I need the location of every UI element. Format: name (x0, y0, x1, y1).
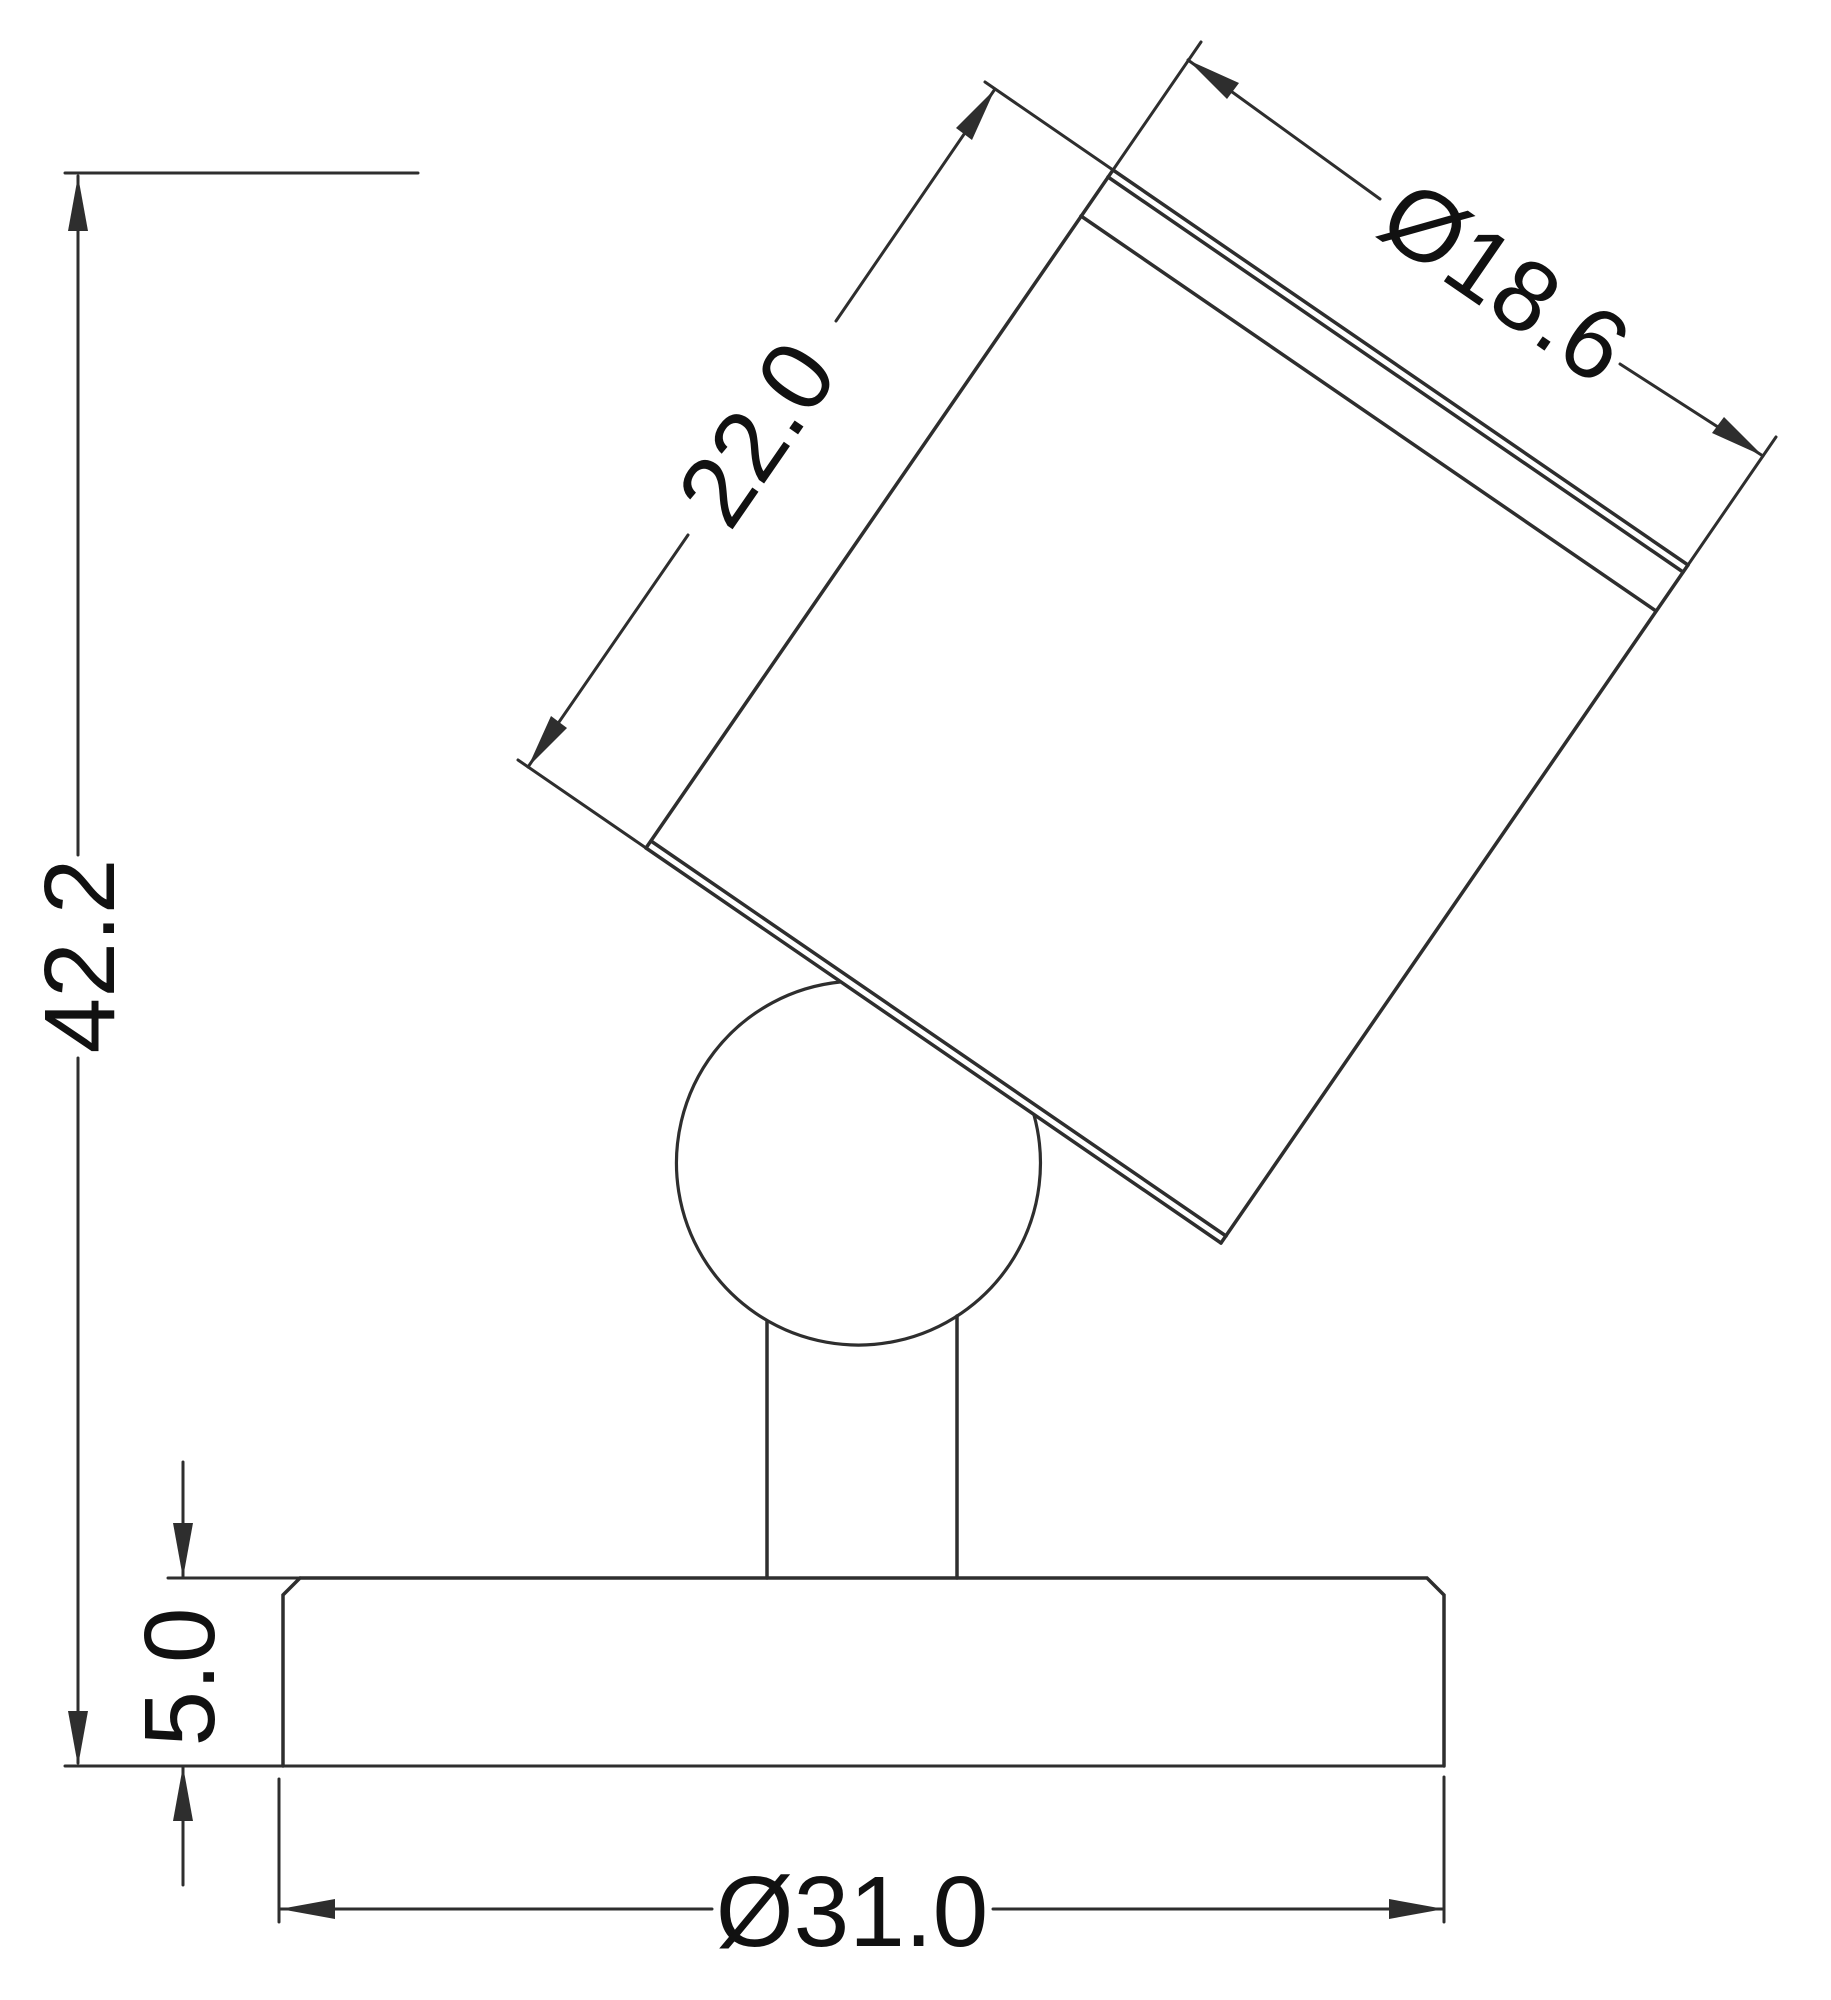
spotlight-dimension-drawing: 42.2 5.0 Ø31.0 22.0 Ø18.6 (0, 0, 1831, 2000)
base (283, 1578, 1444, 1766)
arrow-head-length-upper (956, 89, 995, 140)
arrow-head-diameter-right (1712, 417, 1763, 456)
base-outline (283, 1578, 1444, 1766)
dim-head-length (518, 82, 1113, 848)
arrow-overall-height-up (68, 176, 88, 231)
arrow-base-thickness-down (173, 1523, 193, 1578)
arrow-base-thickness-up (173, 1766, 193, 1821)
head-back-face-edge (646, 848, 1221, 1243)
dim-base-thickness-label: 5.0 (124, 1607, 236, 1746)
arrow-base-diameter-left (280, 1899, 335, 1919)
dim-base-diameter-label: Ø31.0 (716, 1856, 988, 1968)
arrow-base-diameter-right (1389, 1899, 1444, 1919)
arrow-overall-height-down (68, 1711, 88, 1766)
head-right-edge (1221, 565, 1688, 1243)
ball-joint-outline (676, 982, 1040, 1345)
head-back-rim-line (651, 841, 1226, 1236)
dim-head-length-extension-upper (985, 82, 1113, 170)
stem (767, 1316, 957, 1578)
technical-drawing-page: 42.2 5.0 Ø31.0 22.0 Ø18.6 (0, 0, 1831, 2000)
dim-head-length-label: 22.0 (656, 322, 859, 546)
dim-head-length-extension-lower (518, 760, 646, 848)
arrow-head-diameter-left (1188, 60, 1239, 99)
dim-overall-height-label: 42.2 (24, 859, 136, 1054)
ball-joint (676, 982, 1040, 1345)
dimension-labels: 42.2 5.0 Ø31.0 22.0 Ø18.6 (24, 159, 1649, 1968)
arrow-head-length-lower (528, 716, 567, 767)
